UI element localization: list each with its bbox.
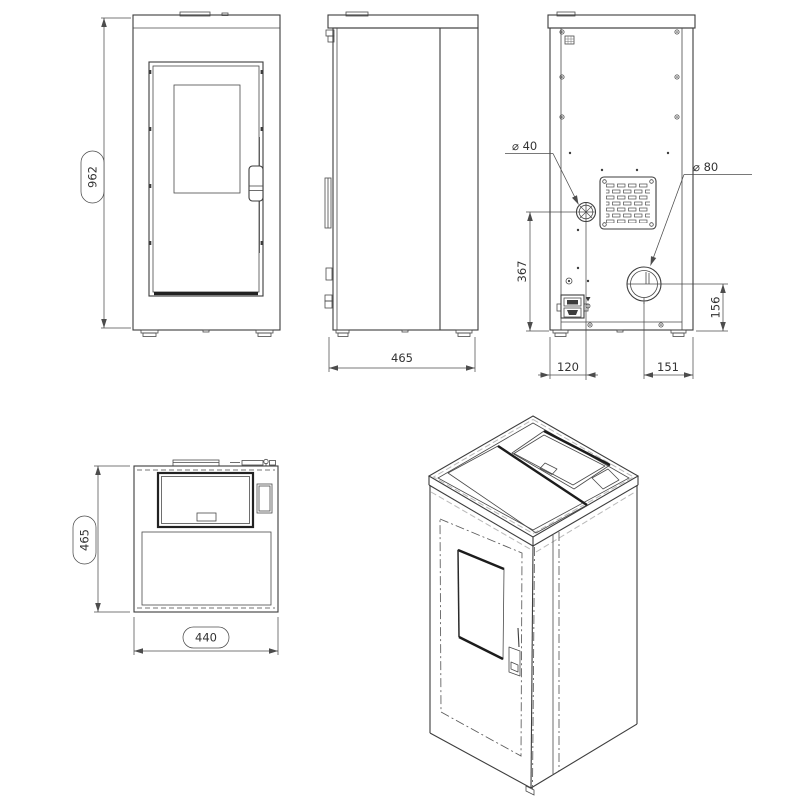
flue-outlet-port (627, 267, 661, 304)
front-height-label: 962 (86, 166, 100, 188)
power-switch-module (557, 278, 591, 318)
top-front-panel (142, 532, 271, 605)
side-depth-label: 465 (391, 351, 413, 365)
front-feet (141, 330, 273, 337)
back-view: 367 156 120 151 ⌀ 40 ⌀ 80 (505, 12, 752, 380)
dim-front-height: 962 (81, 18, 131, 328)
dim-intake-offset: 120 (538, 337, 598, 379)
callout-intake-diameter: ⌀ 40 (505, 139, 579, 205)
iso-door-window (458, 550, 504, 659)
flue-offset-label: 151 (657, 360, 679, 374)
hopper-lid (158, 473, 253, 527)
top-view: 465 440 (73, 459, 278, 655)
back-rating-label (565, 36, 574, 44)
back-top-cap (548, 15, 695, 28)
back-feet (553, 330, 686, 337)
dim-flue-offset: 151 (644, 302, 693, 379)
isometric-view (429, 416, 638, 795)
front-view: 962 (81, 12, 280, 337)
front-door-frame (149, 62, 263, 296)
iso-cap-top (429, 416, 638, 537)
side-feet (336, 330, 472, 337)
side-body (333, 28, 478, 330)
dim-top-depth: 465 (73, 466, 130, 612)
front-hinge-marks (149, 70, 264, 245)
front-door-inner (153, 66, 259, 292)
top-depth-label: 465 (78, 529, 92, 551)
intake-diameter-label: ⌀ 40 (512, 139, 537, 153)
flue-diameter-label: ⌀ 80 (693, 160, 718, 174)
top-control-panel (257, 484, 272, 513)
front-door-window (174, 85, 240, 193)
iso-door-handle (509, 628, 520, 676)
side-view: 465 (325, 12, 478, 372)
pellet-stove-drawing: 962 465 (0, 0, 800, 800)
top-width-label: 440 (195, 631, 217, 645)
intake-height-label: 367 (515, 261, 529, 283)
iso-door-outline (440, 519, 522, 756)
back-fan-grille (600, 177, 656, 229)
dim-intake-height: 367 (515, 212, 577, 331)
side-top-cap (328, 15, 478, 28)
technical-drawing-page: 962 465 (0, 0, 800, 800)
air-intake-port (577, 203, 596, 222)
dim-side-depth: 465 (329, 337, 475, 372)
iso-hopper-lid (512, 431, 610, 489)
flue-height-label: 156 (709, 297, 723, 319)
dim-top-width: 440 (134, 617, 278, 655)
front-door-handle (249, 166, 263, 201)
callout-flue-diameter: ⌀ 80 (651, 160, 753, 266)
dim-flue-height: 156 (662, 284, 729, 331)
top-rear-details (173, 459, 276, 466)
intake-offset-label: 120 (557, 360, 579, 374)
back-body (550, 28, 693, 330)
